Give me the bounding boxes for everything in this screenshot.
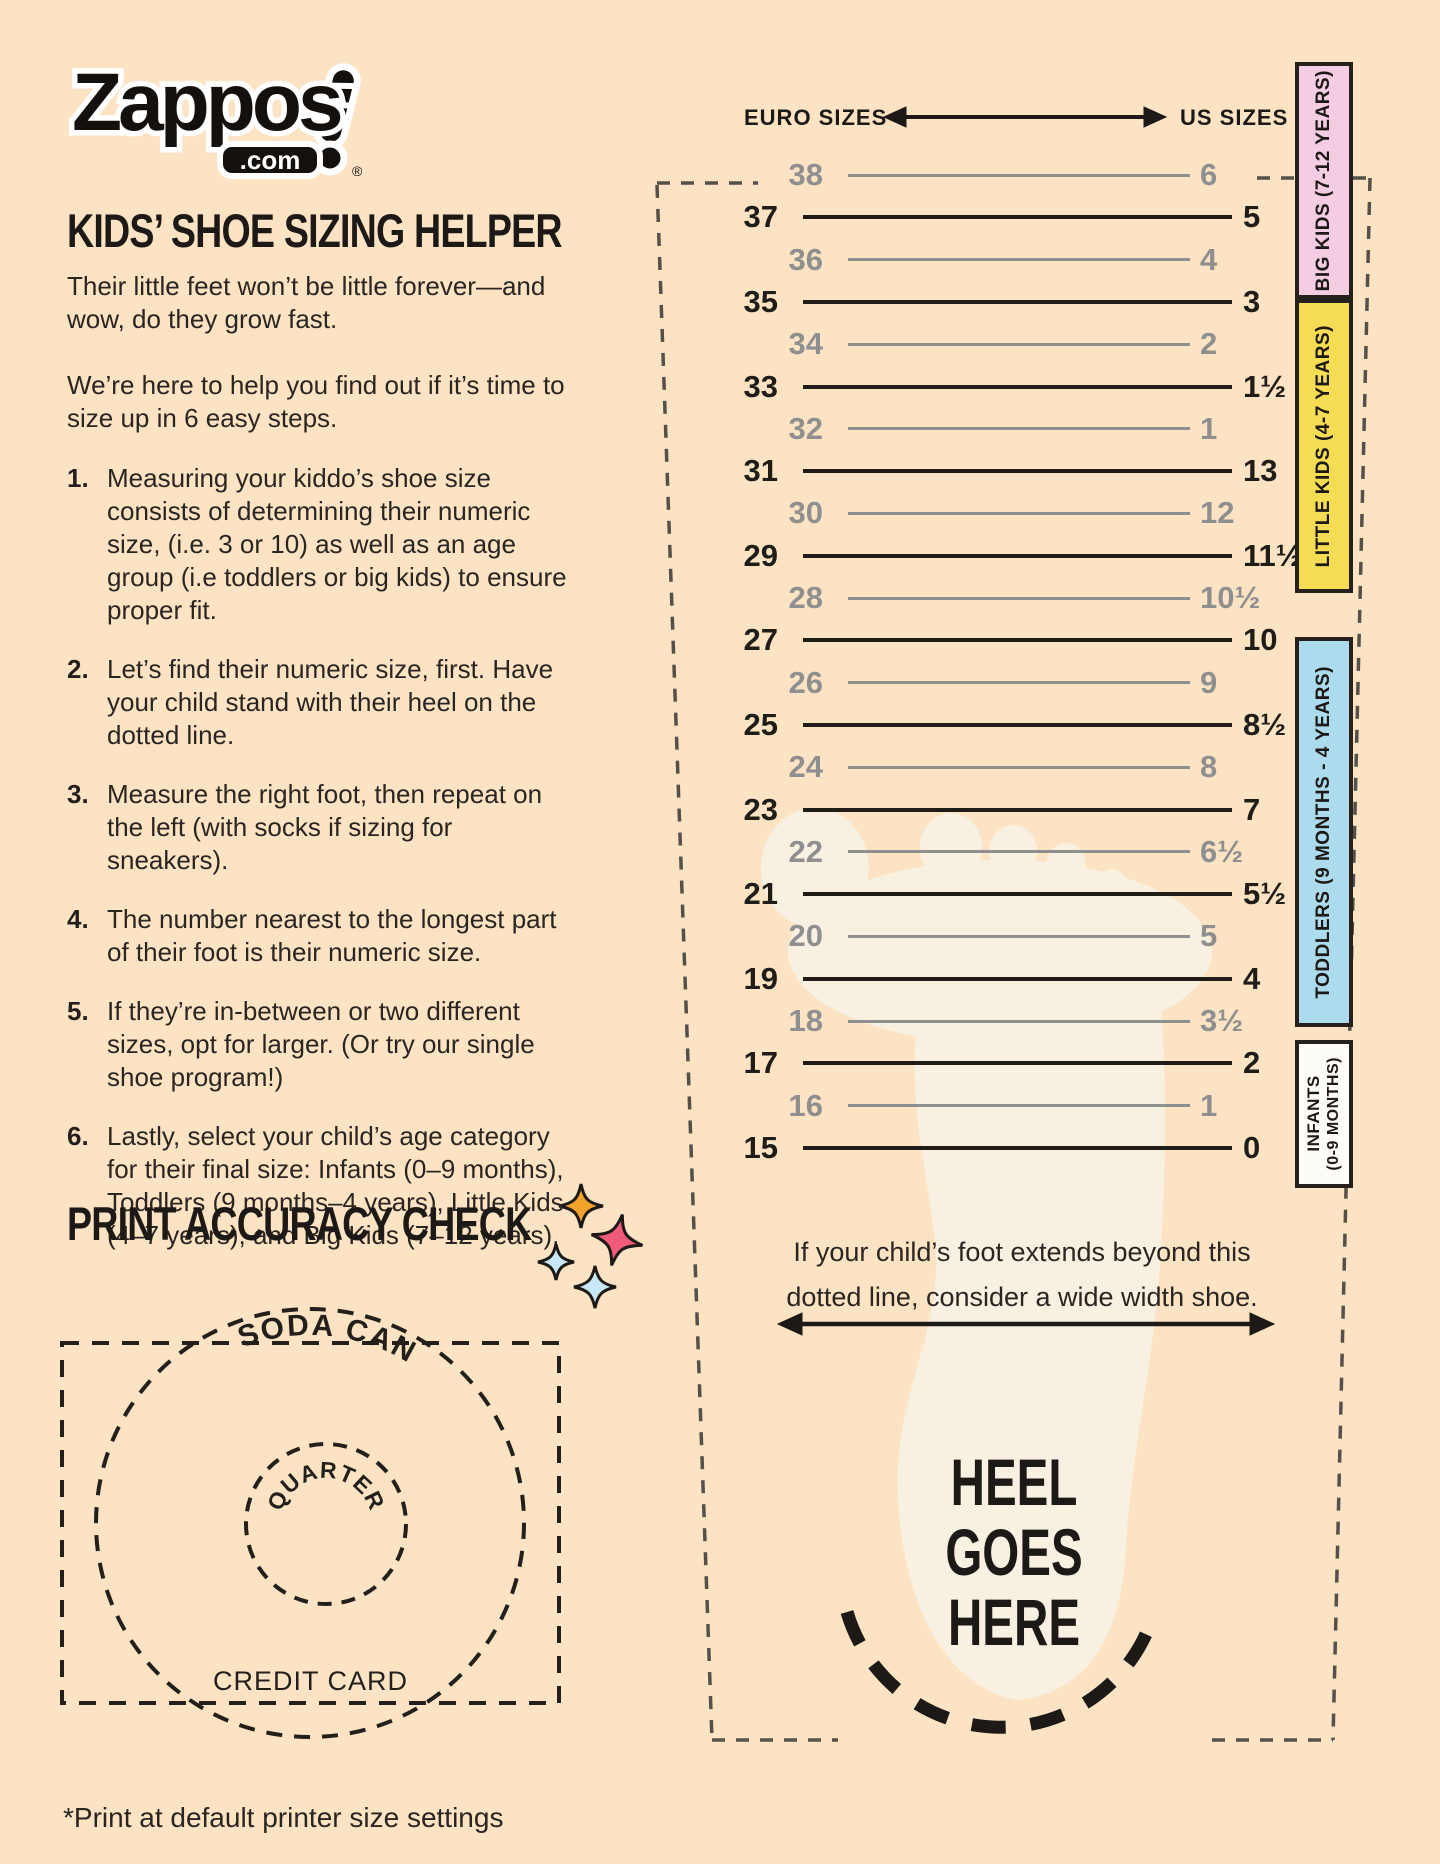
- euro-size-label: 26: [703, 665, 823, 701]
- sparkle-icon-blue: [574, 1266, 616, 1308]
- size-row-line: [848, 935, 1190, 938]
- step-text: If they’re in-between or two different s…: [107, 995, 572, 1094]
- size-row-line: [803, 808, 1232, 812]
- us-sizes-header: US SIZES: [1180, 105, 1288, 131]
- euro-size-label: 30: [703, 495, 823, 531]
- age-band: LITTLE KIDS (4-7 YEARS): [1295, 299, 1353, 593]
- euro-size-label: 16: [703, 1088, 823, 1124]
- wide-width-note-line2: dotted line, consider a wide width shoe.: [722, 1275, 1322, 1320]
- steps-list: 1.Measuring your kiddo’s shoe size consi…: [67, 462, 572, 1278]
- soda-can-label: SODA CAN: [234, 1309, 423, 1370]
- size-row-line: [848, 174, 1190, 177]
- euro-size-label: 31: [658, 453, 778, 489]
- print-settings-note: *Print at default printer size settings: [63, 1802, 503, 1834]
- wide-width-note-line1: If your child’s foot extends beyond this: [722, 1230, 1322, 1275]
- logo-registered: ®: [352, 163, 363, 179]
- size-row-line: [803, 469, 1232, 473]
- euro-size-label: 36: [703, 242, 823, 278]
- euro-size-label: 23: [658, 792, 778, 828]
- credit-card-label: CREDIT CARD: [62, 1666, 559, 1697]
- heel-goes-here-line1: HEEL: [899, 1448, 1129, 1516]
- euro-size-label: 18: [703, 1003, 823, 1039]
- euro-size-label: 25: [658, 707, 778, 743]
- sizing-helper-page: SODA CAN QUARTER Zappos .com ®: [0, 0, 1440, 1864]
- print-accuracy-heading: PRINT ACCURACY CHECK: [67, 1196, 531, 1251]
- size-row-line: [803, 977, 1232, 981]
- euro-sizes-header: EURO SIZES: [744, 105, 887, 131]
- euro-size-label: 29: [658, 538, 778, 574]
- size-row-line: [803, 1146, 1232, 1150]
- euro-size-label: 27: [658, 622, 778, 658]
- step-item: 2.Let’s find their numeric size, first. …: [67, 653, 572, 752]
- step-item: 3.Measure the right foot, then repeat on…: [67, 778, 572, 877]
- size-row-line: [848, 512, 1190, 515]
- size-row-line: [803, 723, 1232, 727]
- age-band-label: INFANTS(0-9 MONTHS): [1304, 1057, 1344, 1171]
- size-row-line: [803, 892, 1232, 896]
- step-item: 1.Measuring your kiddo’s shoe size consi…: [67, 462, 572, 627]
- step-text: Measuring your kiddo’s shoe size consist…: [107, 462, 572, 627]
- step-item: 4.The number nearest to the longest part…: [67, 903, 572, 969]
- size-row-line: [848, 1104, 1190, 1107]
- size-row-line: [803, 1061, 1232, 1065]
- step-number: 4.: [67, 903, 107, 969]
- sparkle-icon-pink: [586, 1209, 648, 1271]
- euro-size-label: 20: [703, 918, 823, 954]
- size-row-line: [848, 681, 1190, 684]
- euro-size-label: 35: [658, 284, 778, 320]
- intro-paragraph-1: Their little feet won’t be little foreve…: [67, 270, 567, 336]
- euro-size-label: 22: [703, 834, 823, 870]
- step-number: 5.: [67, 995, 107, 1094]
- heel-goes-here-line3: HERE: [899, 1588, 1129, 1656]
- quarter-label: QUARTER: [262, 1457, 390, 1515]
- size-row-line: [848, 766, 1190, 769]
- size-row-line: [848, 258, 1190, 261]
- zappos-logo: Zappos .com ®: [72, 57, 363, 179]
- size-row-line: [803, 215, 1232, 219]
- euro-size-label: 24: [703, 749, 823, 785]
- intro-paragraph-2: We’re here to help you find out if it’s …: [67, 369, 567, 435]
- step-number: 2.: [67, 653, 107, 752]
- age-band-label: LITTLE KIDS (4-7 YEARS): [1312, 325, 1336, 567]
- logo-tld: .com: [240, 145, 301, 175]
- age-band: TODDLERS (9 MONTHS - 4 YEARS): [1295, 637, 1353, 1027]
- logo-brand: Zappos: [72, 57, 341, 148]
- step-text: The number nearest to the longest part o…: [107, 903, 572, 969]
- euro-size-label: 28: [703, 580, 823, 616]
- euro-size-label: 15: [658, 1130, 778, 1166]
- size-row-line: [848, 427, 1190, 430]
- size-row-line: [848, 597, 1190, 600]
- heel-goes-here-line2: GOES: [899, 1518, 1129, 1586]
- step-number: 1.: [67, 462, 107, 627]
- page-title: KIDS’ SHOE SIZING HELPER: [67, 203, 562, 258]
- age-band-label: BIG KIDS (7-12 YEARS): [1312, 70, 1336, 291]
- size-row-line: [803, 385, 1232, 389]
- size-row-line: [803, 638, 1232, 642]
- size-row-line: [803, 554, 1232, 558]
- age-band-label: TODDLERS (9 MONTHS - 4 YEARS): [1312, 666, 1336, 999]
- age-band: BIG KIDS (7-12 YEARS): [1295, 62, 1353, 299]
- euro-size-label: 33: [658, 369, 778, 405]
- euro-size-label: 21: [658, 876, 778, 912]
- euro-size-label: 37: [658, 199, 778, 235]
- size-row-line: [803, 300, 1232, 304]
- size-row-line: [848, 850, 1190, 853]
- euro-size-label: 17: [658, 1045, 778, 1081]
- euro-size-label: 38: [703, 157, 823, 193]
- step-item: 5.If they’re in-between or two different…: [67, 995, 572, 1094]
- euro-size-label: 19: [658, 961, 778, 997]
- size-row-line: [848, 1020, 1190, 1023]
- euro-us-arrow-icon: [884, 107, 1166, 127]
- step-text: Measure the right foot, then repeat on t…: [107, 778, 572, 877]
- step-text: Let’s find their numeric size, first. Ha…: [107, 653, 572, 752]
- euro-size-label: 32: [703, 411, 823, 447]
- euro-size-label: 34: [703, 326, 823, 362]
- size-row-line: [848, 343, 1190, 346]
- age-band: INFANTS(0-9 MONTHS): [1295, 1040, 1353, 1188]
- step-number: 3.: [67, 778, 107, 877]
